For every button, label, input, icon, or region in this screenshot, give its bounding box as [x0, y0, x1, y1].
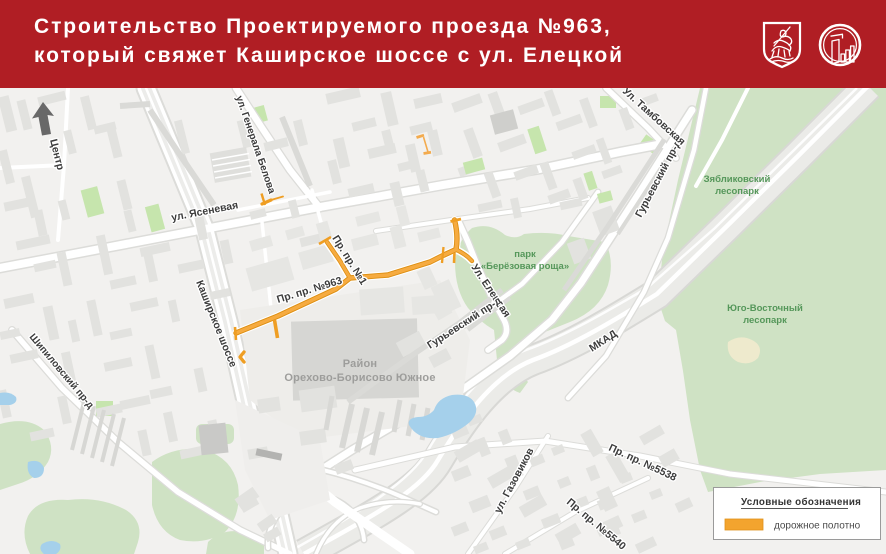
svg-text:Орехово-Борисово Южное: Орехово-Борисово Южное	[284, 372, 435, 384]
svg-text:лесопарк: лесопарк	[715, 186, 759, 197]
svg-text:лесопарк: лесопарк	[743, 315, 787, 326]
svg-text:«Берёзовая роща»: «Берёзовая роща»	[481, 261, 569, 272]
svg-text:Район: Район	[343, 358, 377, 370]
svg-text:Зябликовский: Зябликовский	[704, 174, 771, 185]
svg-text:парк: парк	[514, 249, 536, 260]
svg-text:дорожное полотно: дорожное полотно	[774, 521, 861, 532]
svg-text:Юго-Восточный: Юго-Восточный	[727, 303, 803, 314]
svg-text:Условные обозначения: Условные обозначения	[741, 497, 861, 508]
